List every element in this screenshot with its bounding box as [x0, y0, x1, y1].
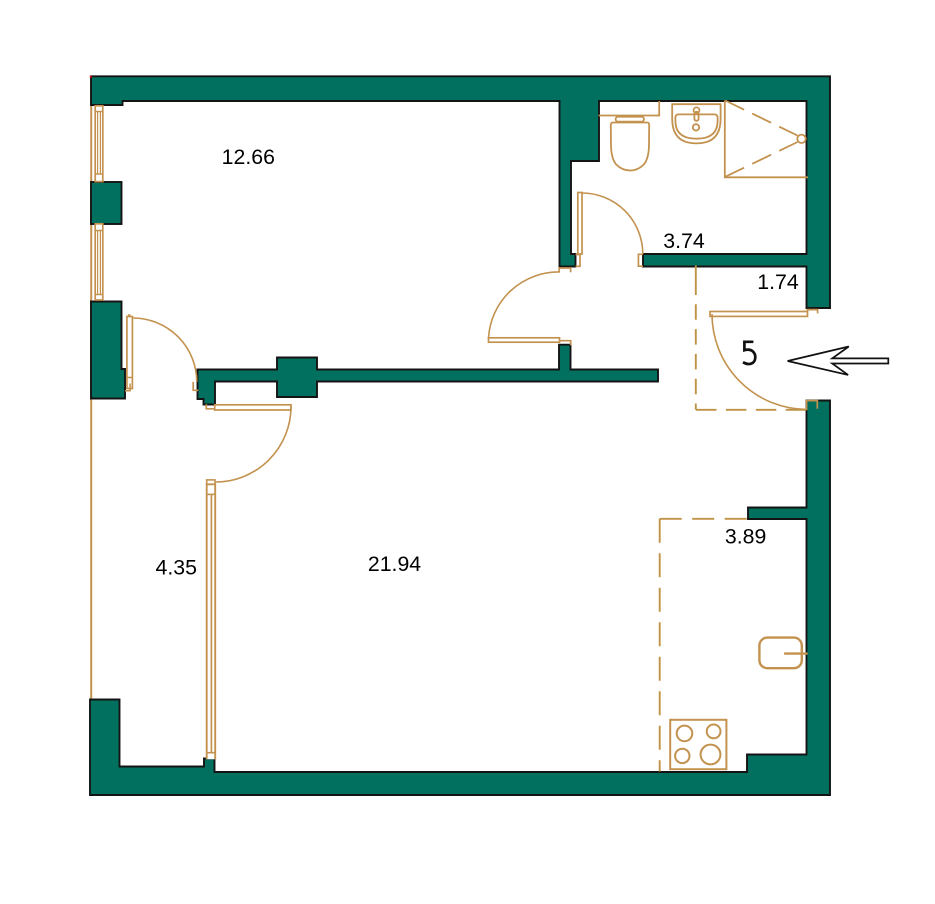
svg-text:3.89: 3.89 — [725, 525, 766, 549]
svg-text:21.94: 21.94 — [368, 552, 421, 576]
svg-text:12.66: 12.66 — [222, 145, 275, 169]
svg-text:4.35: 4.35 — [155, 556, 196, 580]
svg-text:3.74: 3.74 — [663, 229, 705, 253]
svg-text:1.74: 1.74 — [757, 270, 799, 294]
